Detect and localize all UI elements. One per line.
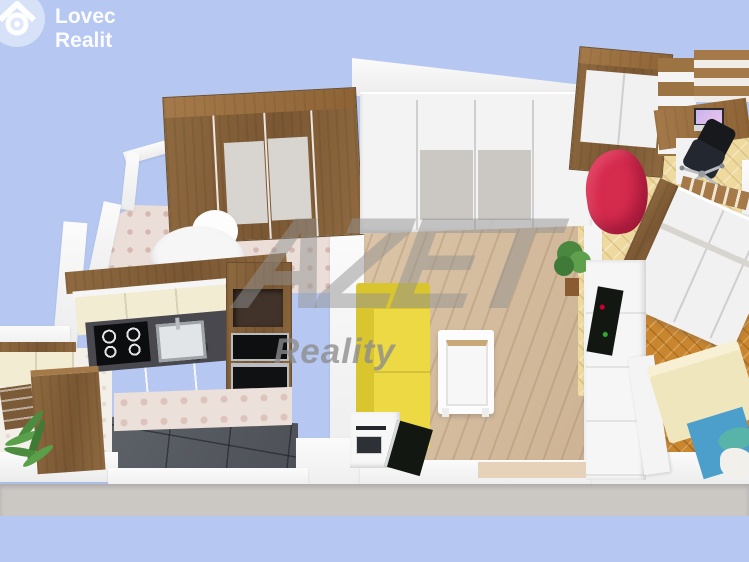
av-device — [356, 436, 382, 454]
wall-topleft-b — [121, 151, 140, 210]
coffee-table-inset — [446, 340, 488, 406]
table-leg — [442, 408, 449, 417]
watermark-azet: AZET — [229, 198, 552, 328]
wall-roof-living — [352, 58, 592, 96]
coffee-table — [438, 330, 494, 414]
house-scope-icon — [0, 0, 58, 50]
table-leg — [482, 408, 489, 417]
floorplan-render: AZET Reality Lovec Realit — [0, 0, 749, 562]
sink — [156, 320, 207, 362]
blanket-white — [720, 448, 749, 478]
fern-plant — [2, 398, 64, 472]
brand-name-line1: Lovec — [55, 5, 116, 29]
dining-cabinet-top-band — [0, 342, 76, 352]
double-bed — [636, 348, 749, 480]
foundation-slab — [0, 484, 749, 516]
soundbar — [356, 426, 386, 430]
brand-name: Lovec Realit — [55, 5, 116, 53]
cooktop — [94, 321, 151, 366]
watermark-reality: Reality — [274, 332, 396, 372]
study-wardrobe-doors — [580, 70, 662, 148]
wardrobe-top-face — [163, 88, 356, 118]
doorway-floor-strip — [478, 462, 586, 478]
brand-name-line2: Realit — [55, 29, 116, 53]
shelf-hutch — [694, 50, 749, 102]
kitchen-island-front-pattern — [114, 387, 292, 431]
